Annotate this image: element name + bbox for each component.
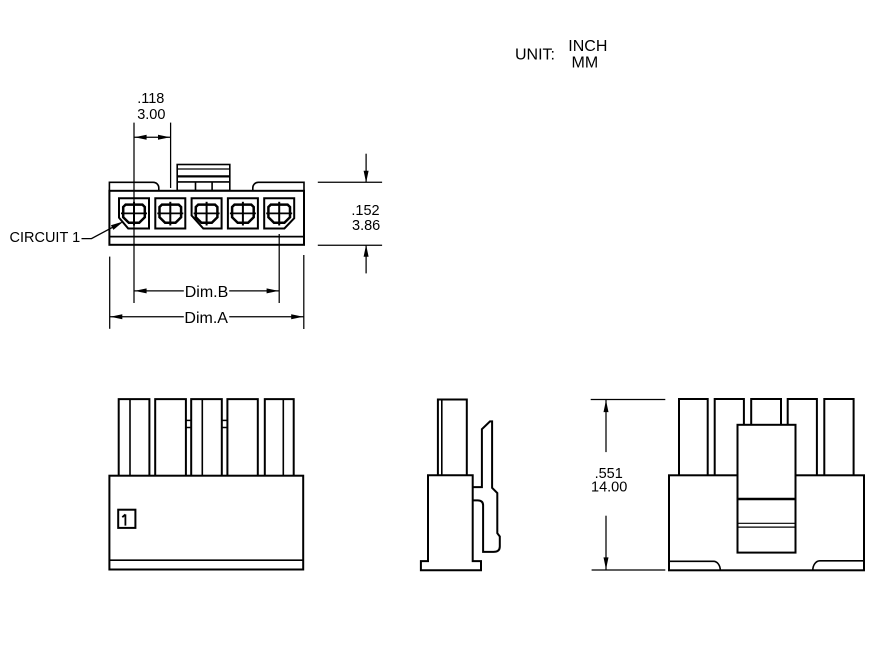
svg-text:.118: .118 [137,91,164,107]
svg-text:INCH: INCH [568,38,607,55]
svg-text:MM: MM [572,55,599,72]
svg-text:Dim.A: Dim.A [184,310,228,327]
svg-text:14.00: 14.00 [591,480,627,496]
svg-text:.152: .152 [351,203,379,219]
svg-text:UNIT:: UNIT: [515,47,555,64]
svg-text:Dim.B: Dim.B [185,284,229,301]
svg-text:CIRCUIT 1: CIRCUIT 1 [10,230,81,246]
svg-text:3.86: 3.86 [352,218,380,234]
svg-text:3.00: 3.00 [137,107,165,123]
